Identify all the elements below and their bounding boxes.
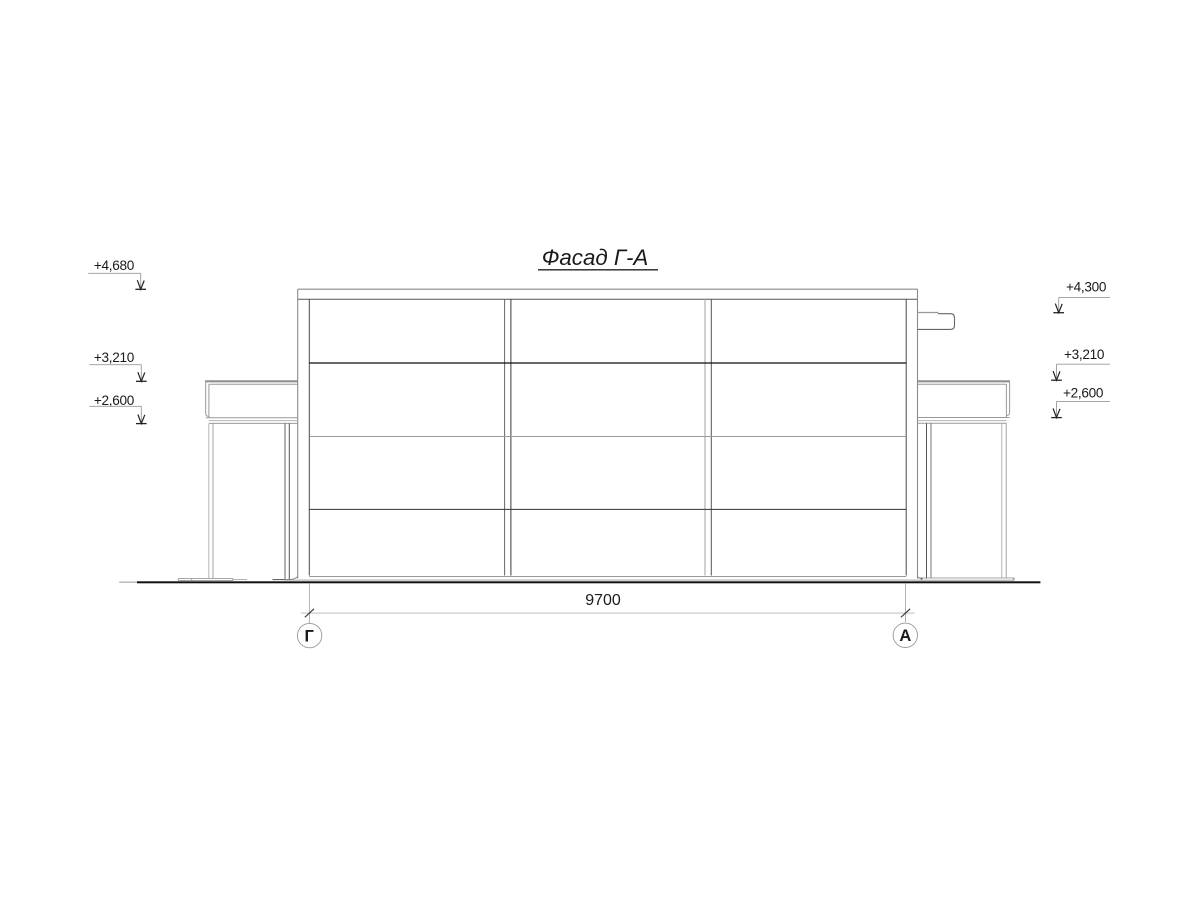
svg-text:+4,300: +4,300 bbox=[1066, 280, 1107, 295]
svg-text:+4,680: +4,680 bbox=[94, 258, 135, 273]
svg-text:+2,600: +2,600 bbox=[94, 393, 135, 408]
svg-text:А: А bbox=[899, 627, 911, 645]
svg-text:+2,600: +2,600 bbox=[1063, 386, 1104, 401]
svg-text:+3,210: +3,210 bbox=[1064, 347, 1105, 362]
svg-text:Г: Г bbox=[305, 627, 315, 645]
svg-text:9700: 9700 bbox=[585, 592, 621, 609]
svg-text:+3,210: +3,210 bbox=[94, 350, 135, 365]
svg-text:Фасад Г-А: Фасад Г-А bbox=[542, 245, 649, 270]
